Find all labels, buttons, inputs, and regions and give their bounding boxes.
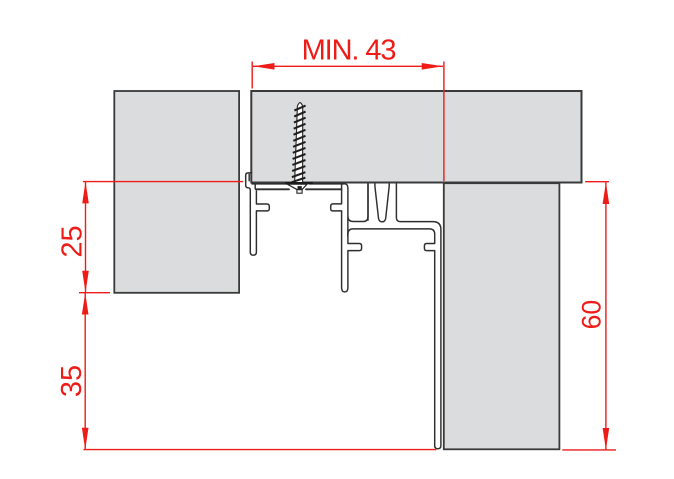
svg-text:MIN. 43: MIN. 43: [302, 35, 396, 67]
svg-text:60: 60: [577, 300, 607, 329]
svg-text:25: 25: [57, 225, 89, 257]
svg-text:35: 35: [56, 365, 88, 397]
